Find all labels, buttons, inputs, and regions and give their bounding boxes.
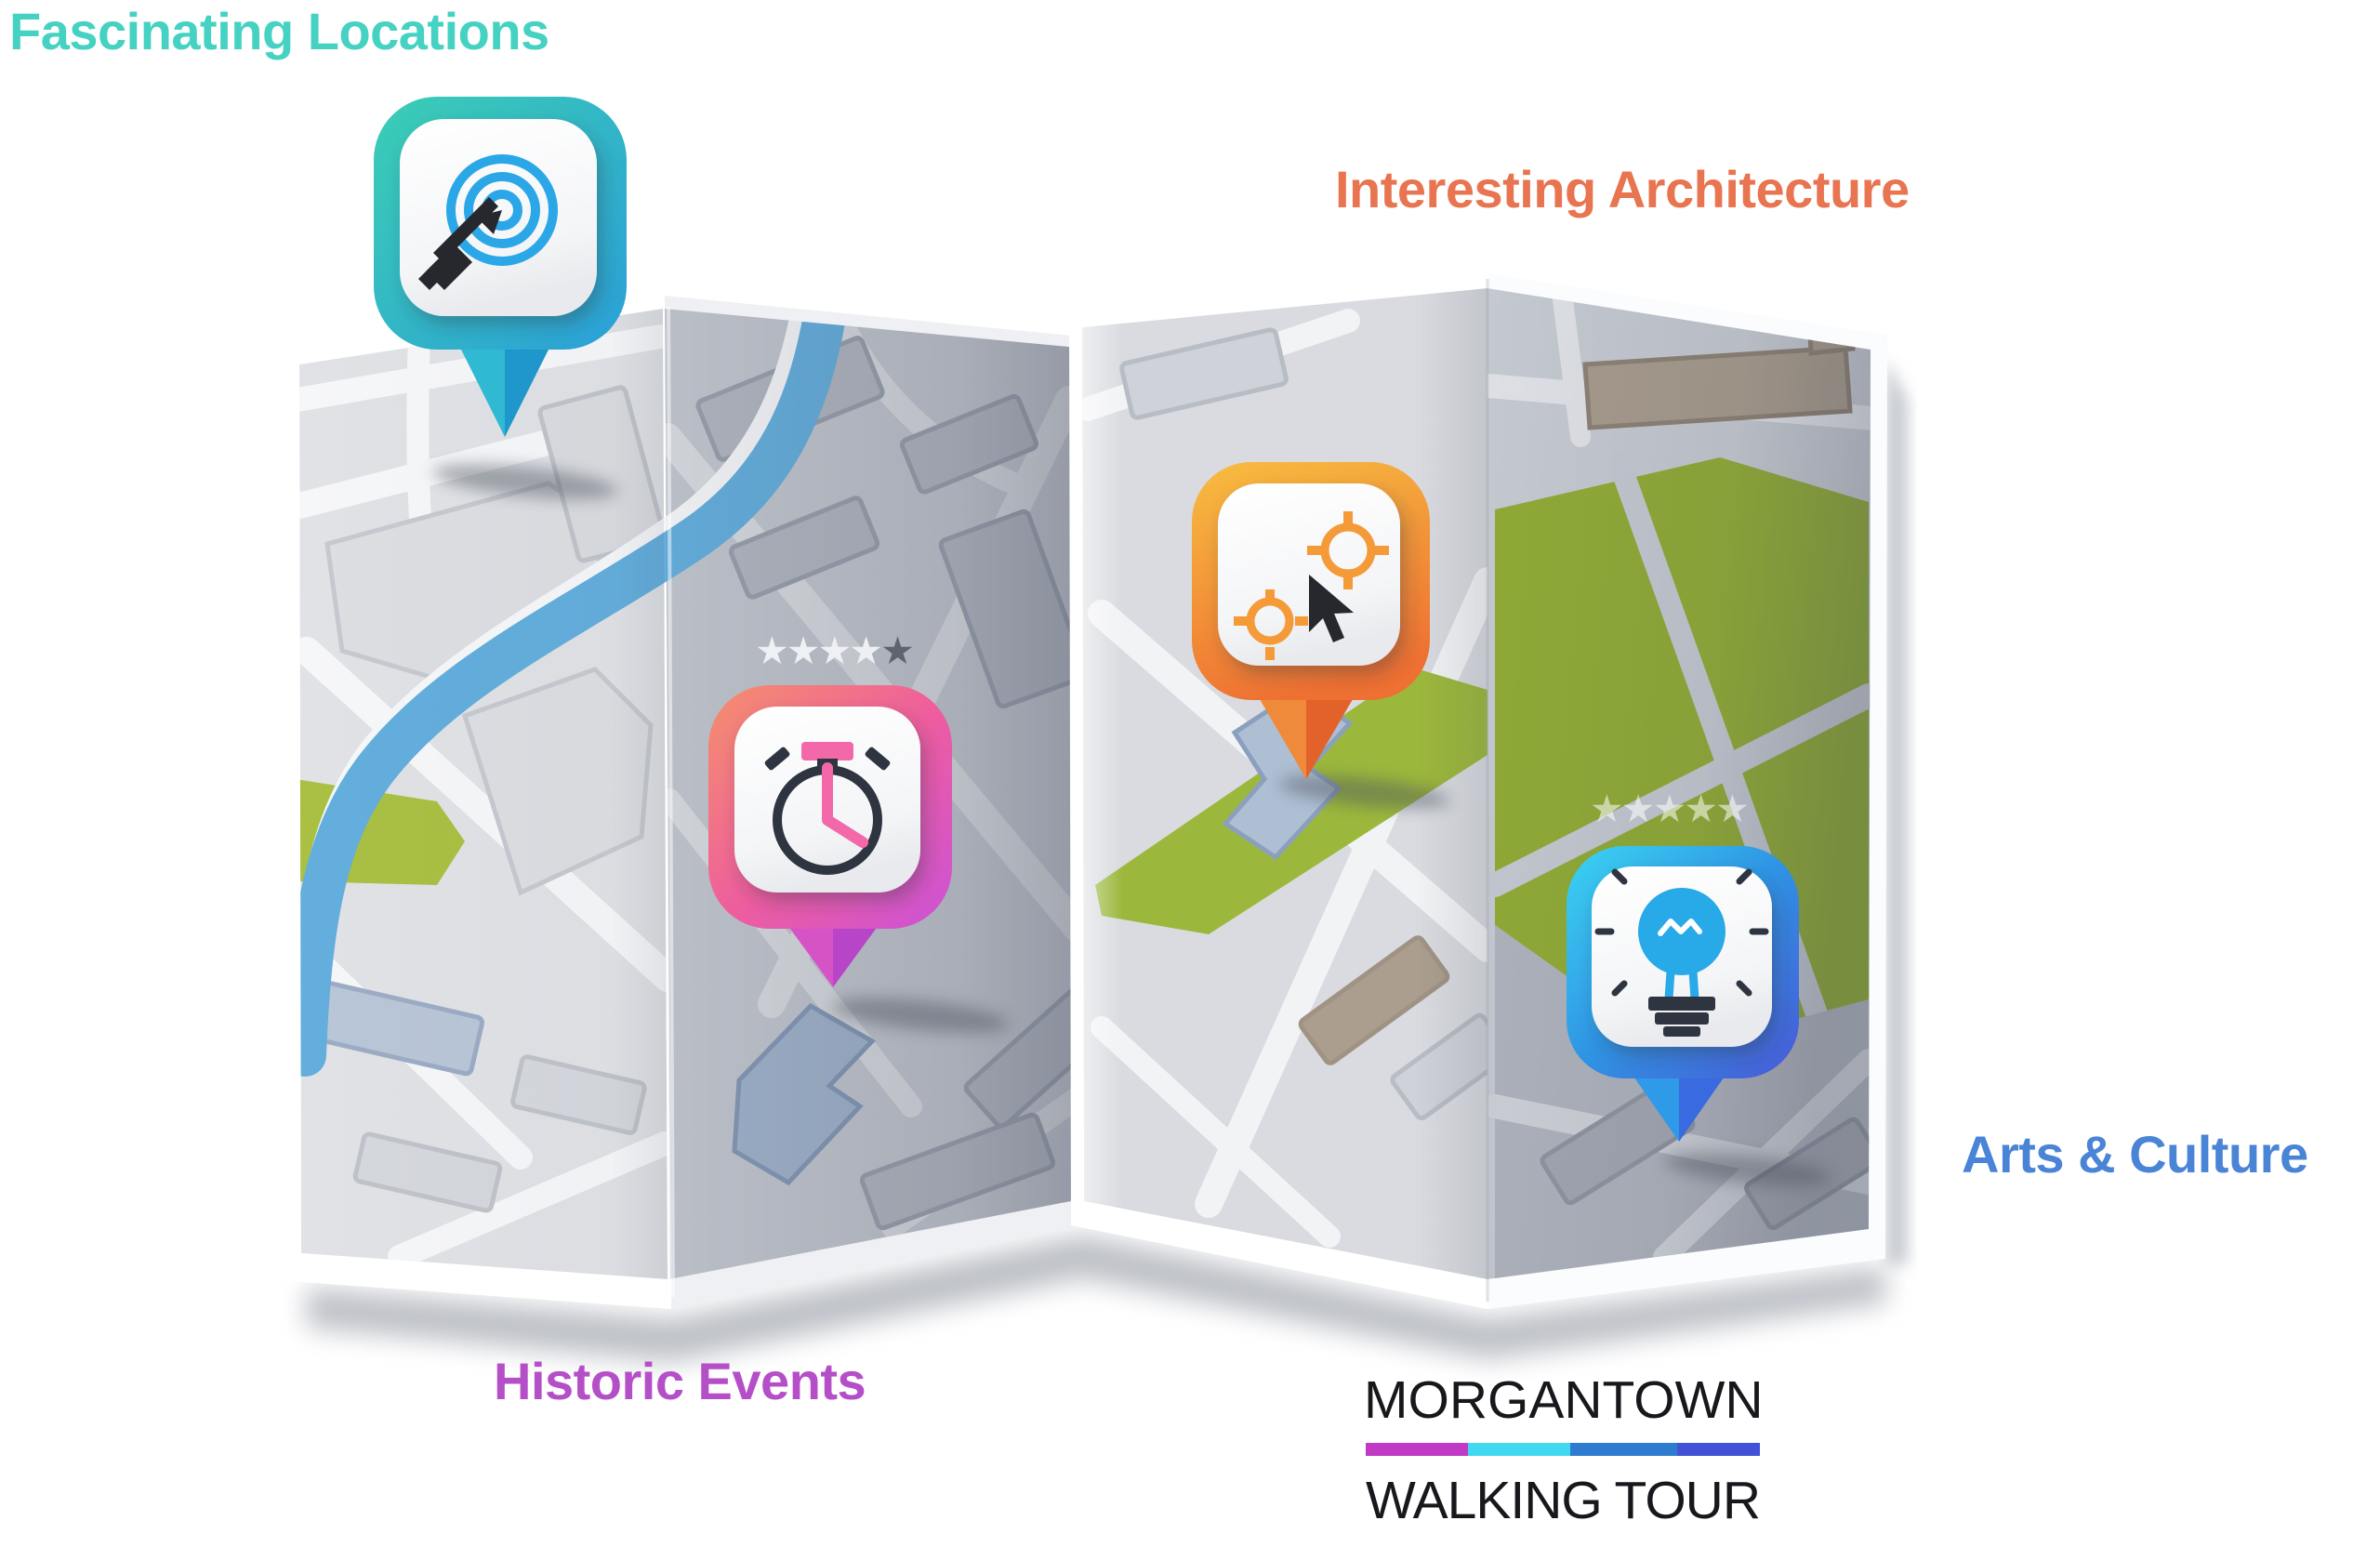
star-icon: ★ xyxy=(1590,790,1621,828)
logo-morgantown-walking-tour: MORGANTOWN WALKING TOUR xyxy=(1364,1372,1762,1529)
star-icon: ★ xyxy=(755,632,787,670)
logo-bar-segment xyxy=(1570,1443,1676,1456)
star-icon: ★ xyxy=(1715,790,1747,828)
logo-bar-segment xyxy=(1366,1443,1468,1456)
label-arts-culture: Arts & Culture xyxy=(1962,1125,2308,1184)
rating-stars-historic: ★★★★★ xyxy=(755,632,912,670)
star-icon: ★ xyxy=(1621,790,1653,828)
star-icon: ★ xyxy=(787,632,818,670)
logo-title-line2: WALKING TOUR xyxy=(1364,1473,1762,1530)
logo-bar-segment xyxy=(1468,1443,1570,1456)
star-icon: ★ xyxy=(1684,790,1715,828)
logo-title-line1: MORGANTOWN xyxy=(1364,1372,1762,1430)
star-icon: ★ xyxy=(880,632,912,670)
folded-map-illustration xyxy=(0,0,2380,1547)
star-icon: ★ xyxy=(849,632,880,670)
label-interesting-architecture: Interesting Architecture xyxy=(1335,160,1910,219)
star-icon: ★ xyxy=(1653,790,1685,828)
rating-stars-arts: ★★★★★ xyxy=(1590,790,1747,828)
map-panel-3 xyxy=(1069,273,1511,1309)
star-icon: ★ xyxy=(818,632,850,670)
walking-tour-poster: Fascinating Locations Interesting Archit… xyxy=(0,0,2380,1547)
logo-bar-segment xyxy=(1677,1443,1760,1456)
label-historic-events: Historic Events xyxy=(494,1352,866,1411)
label-fascinating-locations: Fascinating Locations xyxy=(9,2,549,61)
logo-gradient-bar xyxy=(1366,1443,1760,1456)
